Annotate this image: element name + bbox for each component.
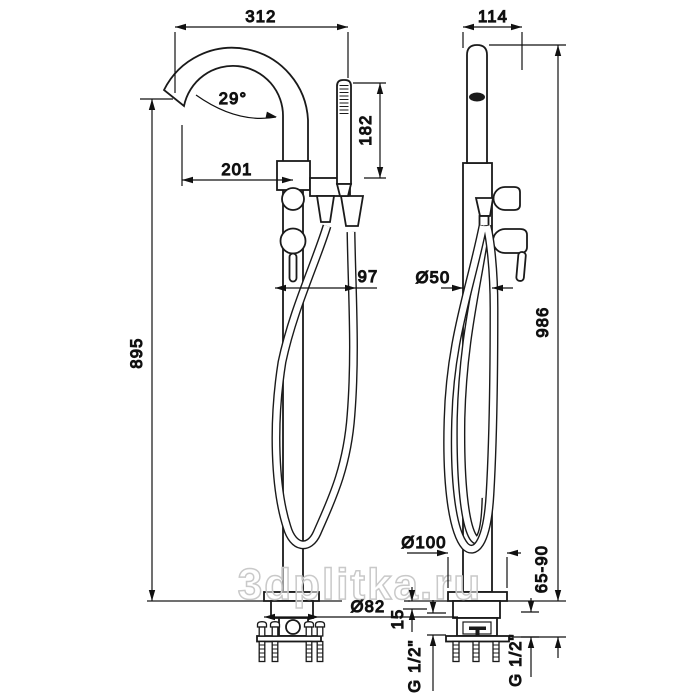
spout-outlet-side [469, 93, 485, 102]
mixer-knob-front [281, 229, 306, 254]
dim-floor-plate-label: 15 [389, 609, 407, 630]
mounting-plate-front [257, 636, 321, 642]
diverter-knob-side [494, 187, 521, 210]
dim-total-height-label: 986 [534, 306, 552, 337]
dim-floor-flange-diameter-label: Ø100 [401, 534, 446, 552]
lever-handle-front [290, 254, 297, 282]
hose-stem-side [480, 216, 489, 226]
dim-thread-right-label: G 1/2" [507, 633, 525, 686]
drawing-svg: 3dplitka.ru 312 29° 201 182 [0, 0, 700, 700]
dim-outlet-height-label: 895 [128, 337, 146, 368]
hose-connector-side [476, 198, 493, 216]
dim-spout-reach-label: 201 [221, 161, 252, 179]
dim-spout-angle-label: 29° [219, 90, 248, 108]
dim-handshower-height-label: 182 [357, 114, 375, 145]
dim-hose-offset-label: 97 [358, 268, 379, 286]
lever-handle-side [516, 252, 526, 282]
hose-elbow [317, 196, 334, 222]
dim-base-diameter-label: Ø82 [351, 598, 386, 616]
handshower-cone [337, 184, 351, 196]
dim-thread-left-label: G 1/2" [406, 639, 424, 692]
dim-column-diameter-label: Ø50 [416, 269, 451, 287]
mounting-plate-side [446, 636, 509, 642]
mixer-knob-side [493, 229, 527, 253]
inlet-circle-front [286, 620, 300, 634]
dim-overall-depth-label: 312 [245, 8, 276, 26]
diverter-knob-front [282, 188, 304, 210]
dim-underfloor-range-label: 65-90 [533, 545, 551, 593]
technical-drawing-canvas: 3dplitka.ru 312 29° 201 182 [0, 0, 700, 700]
mixer-body-front [277, 161, 310, 190]
dim-top-depth-label: 114 [478, 8, 508, 26]
column-top-side [467, 45, 487, 163]
